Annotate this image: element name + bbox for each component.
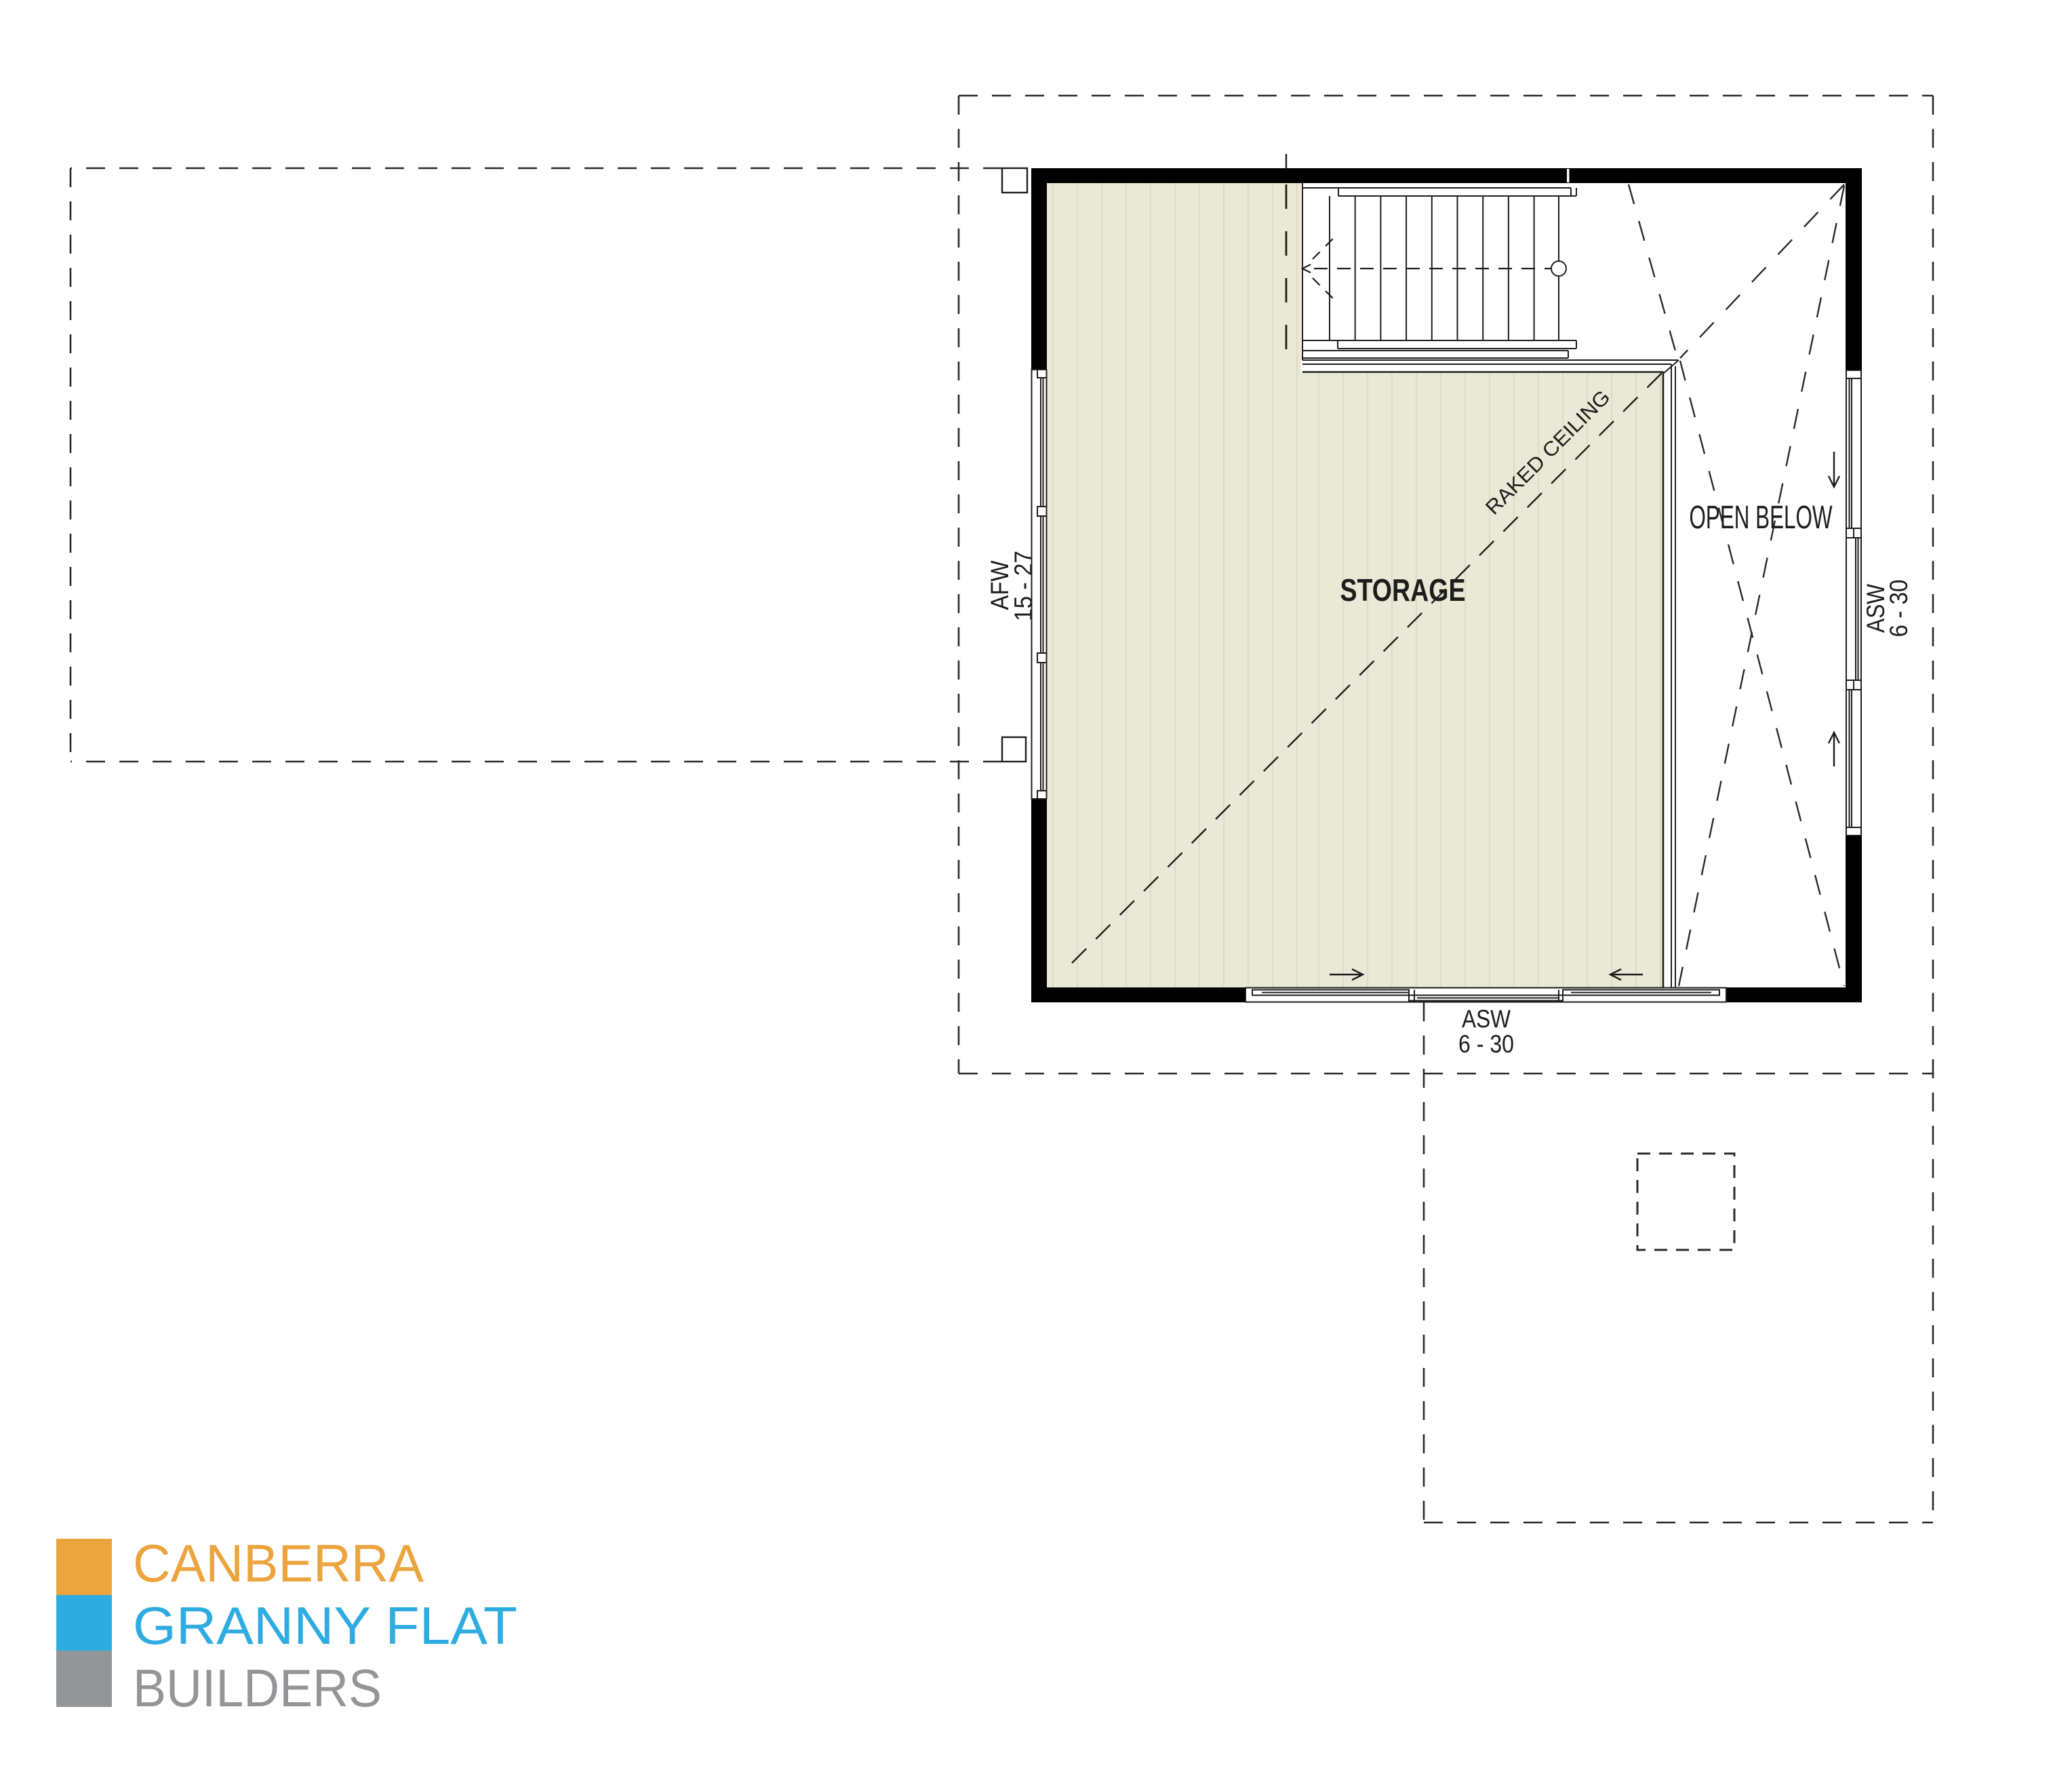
svg-text:ASW: ASW	[1462, 1005, 1511, 1033]
svg-text:STORAGE: STORAGE	[1340, 572, 1466, 608]
svg-text:6 - 30: 6 - 30	[1458, 1030, 1514, 1058]
svg-text:GRANNY FLAT: GRANNY FLAT	[133, 1596, 517, 1655]
svg-text:15 - 27: 15 - 27	[1010, 551, 1037, 621]
svg-text:CANBERRA: CANBERRA	[133, 1533, 424, 1593]
svg-text:6 - 30: 6 - 30	[1885, 580, 1913, 637]
svg-text:OPEN BELOW: OPEN BELOW	[1690, 500, 1833, 536]
svg-text:BUILDERS: BUILDERS	[133, 1658, 382, 1718]
